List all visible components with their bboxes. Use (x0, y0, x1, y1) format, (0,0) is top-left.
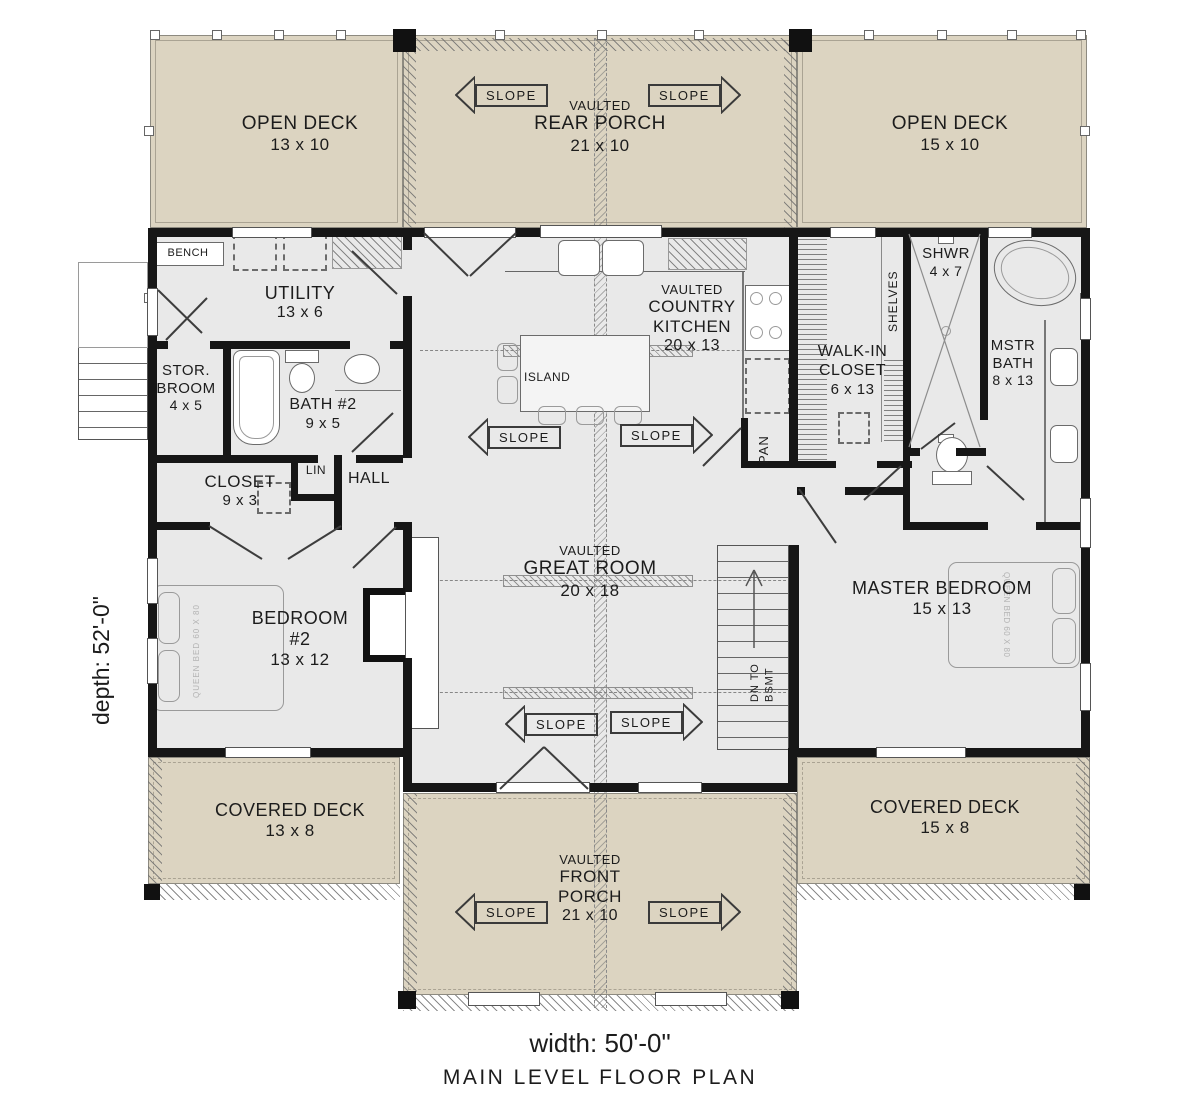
wall (223, 341, 231, 463)
arrow-head-icon (455, 893, 475, 931)
label-master-bath: MSTRBATH8 x 13 (982, 337, 1044, 389)
washer (233, 233, 277, 271)
plan-title: MAIN LEVEL FLOOR PLAN (380, 1066, 820, 1091)
slope-label: SLOPE (525, 713, 598, 736)
deck-hatch (797, 884, 1090, 900)
wall (403, 228, 412, 250)
utility-cabinet-hatch (332, 233, 402, 269)
arrow-head-icon (721, 76, 741, 114)
porch-hatch (783, 793, 797, 995)
label-island: ISLAND (524, 370, 588, 384)
window (638, 782, 702, 793)
wall (403, 783, 797, 792)
label-shelves: SHELVES (886, 246, 900, 332)
wall (789, 545, 799, 757)
burner (769, 326, 782, 339)
label-bath2: BATH #29 x 5 (268, 396, 378, 433)
wall (148, 522, 210, 530)
door-opening (147, 288, 158, 336)
label-front-porch: VAULTEDFRONTPORCH21 x 10 (530, 852, 650, 926)
bench-label: BENCH (152, 247, 224, 260)
kitchen-sink-basin (558, 240, 600, 276)
stairs-label-line2: BSMT (763, 667, 775, 702)
vanity-sink (1050, 425, 1078, 463)
floor-plan: BENCH QUEEN BED 60 X 80 (0, 0, 1200, 1112)
wall (403, 296, 412, 458)
corner-post (398, 991, 416, 1009)
toilet-bowl (289, 363, 315, 393)
kitchen-window (540, 225, 662, 238)
wall (797, 487, 805, 495)
corner-post (781, 991, 799, 1009)
rail-post (150, 30, 160, 40)
label-kitchen: VAULTEDCOUNTRYKITCHEN20 x 13 (632, 282, 752, 356)
rail-post (597, 30, 607, 40)
slope-label: SLOPE (488, 426, 561, 449)
label-open-deck-right: OPEN DECK15 x 10 (840, 113, 1060, 155)
rail-post (144, 126, 154, 136)
label-lin: LIN (296, 463, 336, 477)
label-stor-broom: STOR.BROOM4 x 5 (148, 362, 224, 414)
arrow-head-icon (693, 416, 713, 454)
slope-arrow-left: SLOPE (505, 705, 598, 743)
wall (390, 341, 403, 349)
slope-arrow-right: SLOPE (648, 76, 741, 114)
wall (956, 448, 986, 456)
wall (845, 487, 905, 495)
kitchen-sink-basin (602, 240, 644, 276)
label-walk-in-closet: WALK-INCLOSET6 x 13 (800, 343, 905, 398)
stairs-label-line1: DN TO (749, 663, 761, 702)
window (830, 227, 876, 238)
porch-hatch (403, 793, 417, 995)
wall (403, 522, 412, 592)
slope-arrow-right: SLOPE (648, 893, 741, 931)
window (1080, 498, 1091, 548)
label-covered-deck-right: COVERED DECK15 x 8 (840, 797, 1050, 838)
window (1080, 663, 1091, 711)
bed-pillow (1052, 568, 1076, 614)
slope-label: SLOPE (475, 901, 548, 924)
arrow-head-icon (721, 893, 741, 931)
bed-pillow (1052, 618, 1076, 664)
label-utility: UTILITY13 x 6 (230, 283, 370, 323)
rail-post (694, 30, 704, 40)
bed-note: QUEEN BED 60 X 80 (192, 598, 201, 698)
shower-drain (941, 326, 951, 336)
label-open-deck-left: OPEN DECK13 x 10 (190, 113, 410, 155)
rail-post (336, 30, 346, 40)
porch-opening (655, 992, 727, 1006)
rail-post (1007, 30, 1017, 40)
wall (789, 461, 836, 468)
arrow-head-icon (468, 418, 488, 456)
rail-post (937, 30, 947, 40)
french-door-opening (496, 782, 590, 793)
corner-post (144, 884, 160, 900)
rail-post (495, 30, 505, 40)
wall (356, 455, 403, 463)
shelf-edge (881, 234, 882, 442)
slope-arrow-left: SLOPE (468, 418, 561, 456)
width-dimension-label: width: 50'-0" (440, 1028, 760, 1059)
stairs-label: DN TO BSMT (748, 612, 777, 702)
bath2-sink (344, 354, 380, 384)
window (876, 747, 966, 758)
wall (903, 522, 988, 530)
deck-hatch (1076, 757, 1090, 884)
exterior-landing (78, 262, 148, 348)
window (225, 747, 311, 758)
slope-arrow-right: SLOPE (610, 703, 703, 741)
bed-pillow (158, 592, 180, 644)
dryer (283, 233, 327, 271)
rail-post (274, 30, 284, 40)
label-closet: CLOSET9 x 3 (160, 472, 320, 510)
window (147, 638, 158, 684)
label-pantry: PAN (756, 420, 771, 464)
label-master-bedroom: MASTER BEDROOM15 x 13 (842, 578, 1042, 619)
window (147, 558, 158, 604)
rail-post (864, 30, 874, 40)
deck-hatch (148, 884, 400, 900)
burner (769, 292, 782, 305)
slope-arrow-left: SLOPE (455, 76, 548, 114)
rail-post (1080, 126, 1090, 136)
window (1080, 298, 1091, 340)
refrigerator (745, 358, 790, 414)
vanity-sink (1050, 348, 1078, 386)
window (988, 227, 1032, 238)
walkin-dashed-box (838, 412, 870, 444)
rail-post (1076, 30, 1086, 40)
slope-arrow-left: SLOPE (455, 893, 548, 931)
toilet-tank (932, 471, 972, 485)
arrow-head-icon (505, 705, 525, 743)
slope-label: SLOPE (610, 711, 683, 734)
exterior-steps (78, 348, 148, 440)
vanity-edge (1044, 320, 1046, 523)
corner-post (1074, 884, 1090, 900)
island-stool (497, 376, 518, 404)
wall (148, 341, 168, 349)
bath2-counter-edge (335, 390, 401, 391)
arrow-head-icon (455, 76, 475, 114)
label-great-room: VAULTEDGREAT ROOM20 x 18 (495, 543, 685, 601)
window (424, 227, 516, 238)
slope-arrow-right: SLOPE (620, 416, 713, 454)
wall (394, 522, 403, 530)
corner-post (789, 29, 812, 52)
wall (789, 228, 798, 468)
upper-cabinet-hatch (668, 238, 747, 270)
slope-label: SLOPE (648, 901, 721, 924)
wall (210, 341, 350, 349)
wall (403, 658, 412, 757)
slope-label: SLOPE (475, 84, 548, 107)
label-bedroom2: BEDROOM#213 x 12 (225, 608, 375, 671)
slope-label: SLOPE (648, 84, 721, 107)
depth-dimension-label: depth: 52'-0" (88, 515, 115, 725)
deck-hatch (148, 757, 162, 884)
bed-pillow (158, 650, 180, 702)
porch-column-hatch (784, 40, 797, 228)
arrow-head-icon (683, 703, 703, 741)
label-covered-deck-left: COVERED DECK13 x 8 (185, 800, 395, 841)
toilet-tank (285, 350, 319, 363)
slope-label: SLOPE (620, 424, 693, 447)
window (232, 227, 312, 238)
rail-post (212, 30, 222, 40)
island-stool (576, 406, 604, 425)
label-hall: HALL (338, 470, 400, 489)
corner-post (393, 29, 416, 52)
island-stool (497, 343, 518, 371)
label-shower: SHWR4 x 7 (910, 245, 982, 279)
porch-opening (468, 992, 540, 1006)
